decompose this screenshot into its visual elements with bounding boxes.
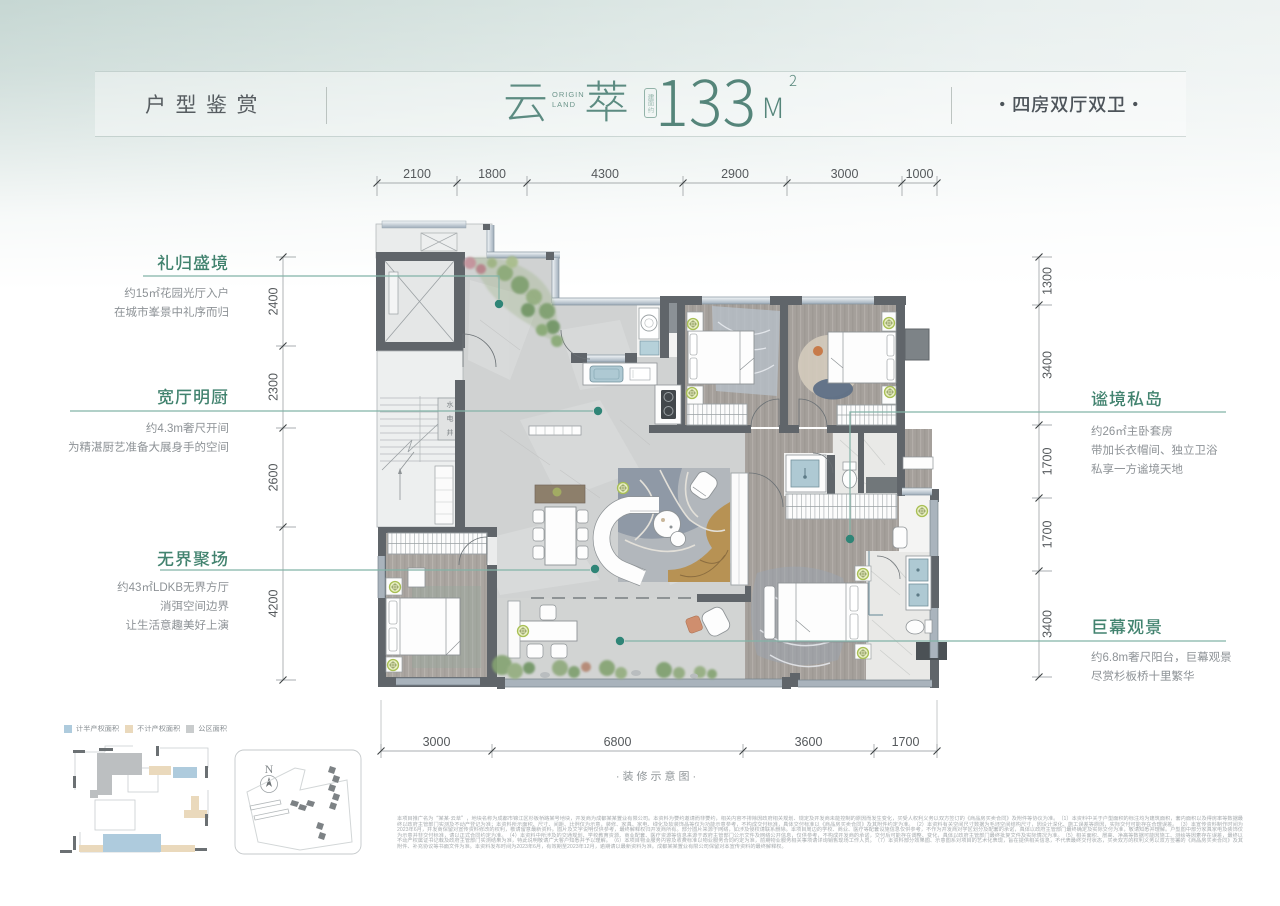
svg-text:2400: 2400 — [262, 288, 281, 316]
svg-text:井: 井 — [447, 428, 454, 438]
svg-text:电: 电 — [447, 414, 454, 424]
svg-text:3000: 3000 — [831, 163, 859, 182]
svg-text:4200: 4200 — [262, 590, 281, 618]
svg-text:3400: 3400 — [1036, 351, 1055, 379]
svg-text:4300: 4300 — [591, 163, 619, 182]
svg-text:6800: 6800 — [604, 731, 632, 750]
svg-text:2300: 2300 — [262, 373, 281, 401]
svg-text:3400: 3400 — [1036, 610, 1055, 638]
svg-text:1700: 1700 — [892, 731, 920, 750]
svg-text:2900: 2900 — [721, 163, 749, 182]
svg-text:3600: 3600 — [795, 731, 823, 750]
svg-text:2600: 2600 — [262, 464, 281, 492]
svg-text:1700: 1700 — [1036, 521, 1055, 549]
svg-text:1800: 1800 — [478, 163, 506, 182]
svg-text:2100: 2100 — [403, 163, 431, 182]
svg-text:N: N — [265, 762, 274, 776]
svg-text:1000: 1000 — [906, 163, 934, 182]
svg-text:3000: 3000 — [423, 731, 451, 750]
svg-text:1300: 1300 — [1036, 267, 1055, 295]
svg-text:1700: 1700 — [1036, 448, 1055, 476]
svg-text:水: 水 — [447, 400, 454, 410]
